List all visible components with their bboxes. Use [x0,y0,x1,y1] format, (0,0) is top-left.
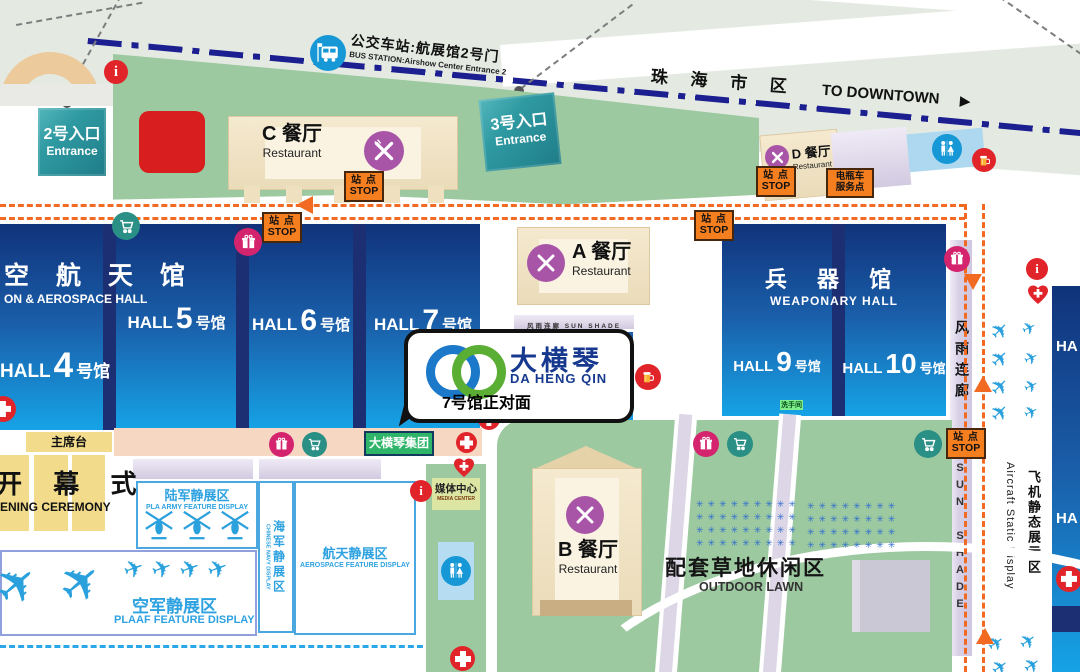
restaurant-c-sub: Restaurant [262,146,322,160]
aerospace-hall-title-zh: 空 航 天 馆 [4,256,195,292]
plane-icon: ✈ [986,345,1015,374]
navy-display-box: CHINESE NAVY DISPLAY 海军静展区 [258,481,294,633]
fengyu-corridor-label: 风雨连廊 [952,320,972,404]
shopping-icon [302,432,327,457]
info-icon: i [1026,258,1048,280]
bus-glyph [315,40,341,66]
pergola-strip [259,459,381,479]
hall-divider [103,224,116,430]
shuttle-stop-badge: 站 点STOP [946,428,986,459]
lawn-seating-grid: ✳✳✳✳✳✳✳✳ ✳✳✳✳✳✳✳✳ ✳✳✳✳✳✳✳✳ ✳✳✳✳✳✳✳✳ [807,500,899,552]
toilet-icon [441,556,471,586]
hall9-facility-badge: 洗手间 [780,400,803,410]
hall-9-label: HALL9号馆 [722,346,832,378]
weaponry-hall-complex: 兵 器 馆 WEAPONARY HALL HALL9号馆 HALL10号馆 [722,224,946,416]
restaurant-c-label: C 餐厅 Restaurant [262,124,322,160]
plane-icon: ✈ [49,550,113,615]
weaponry-hall-title-en: WEAPONARY HALL [722,294,946,308]
info-icon: i [410,480,432,502]
plaaf-display-box: ✈ ✈ ✈ ✈ ✈ ✈ 空军静展区 PLAAF FEATURE DISPLAY [0,550,257,636]
restaurant-d-label: D 餐厅 Restaurant [791,140,832,171]
bus-station-icon [310,35,346,71]
restaurant-b-roof [532,446,640,470]
gift-shop-icon [234,228,262,256]
dahengqin-note: 7号馆正对面 [442,389,531,413]
plane-icon: ✈ [986,399,1015,428]
plane-icon: ✈ [177,555,204,584]
ev-service-badge: 电瓶车服务点 [826,168,874,198]
refreshment-icon [972,148,996,172]
media-center-en: MEDIA CENTER [432,496,480,502]
lawn-label-zh: 配套草地休闲区 [665,552,826,582]
plane-icon: ✈ [149,555,176,584]
route-arrow-down [964,274,982,290]
weaponry-hall-title-zh: 兵 器 馆 [722,262,946,294]
entrance-2: 2号入口 Entrance [38,108,106,176]
building-leg [244,186,260,203]
lawn-label-en: OUTDOOR LAWN [699,580,803,594]
refreshment-icon [635,364,661,390]
media-center-box: 媒体中心 MEDIA CENTER [432,478,480,510]
shuttle-route-lower [0,217,965,220]
entrance-2-en: Entrance [38,144,106,158]
shuttle-stop-badge: 站 点STOP [756,166,796,197]
info-icon: i [104,60,128,84]
hall-10-label: HALL10号馆 [842,348,946,380]
hall-4-label: HALL4号馆 [0,346,103,386]
navy-display-zh: 海军静展区 [271,520,288,595]
army-display-zh: 陆军静展区 [138,485,256,504]
podium-label: 主席台 [51,435,87,449]
display-zone-dashed-line [0,645,432,648]
route-arrow-up [974,376,992,392]
shopping-icon [112,212,140,240]
right-hall-fragment: HA [1056,510,1078,527]
shuttle-stop-badge: 站 点STOP [694,210,734,241]
media-center-zh: 媒体中心 [432,481,480,496]
ceremony-label-en: PENING CEREMONY [0,500,111,514]
plane-icon: ✈ [121,555,148,584]
plaaf-display-en: PLAAF FEATURE DISPLAY [114,614,255,626]
aerospace-display-zh: 航天静展区 [296,543,414,562]
aerospace-display-en: AEROSPACE FEATURE DISPLAY [296,562,414,569]
dahengqin-group-badge: 大横琴集团 [364,431,434,456]
downtown-arrow-icon: ▶ [959,92,971,109]
gift-shop-icon [693,431,719,457]
lawn-seating-grid: ✳✳✳✳✳✳✳✳✳ ✳✳✳✳✳✳✳✳✳ ✳✳✳✳✳✳✳✳✳ ✳✳✳✳✳✳✳✳✳ [696,498,800,550]
toilet-icon [932,134,962,164]
plane-icon: ✈ [1019,318,1039,339]
helicopter-icon [142,509,176,541]
info-glyph: i [114,64,118,81]
dahengqin-callout: 大横琴 DA HENG QIN 7号馆正对面 [404,329,634,423]
plane-icon: ✈ [1021,348,1041,369]
restaurant-c-icon [364,131,404,171]
helicopter-icon [180,509,214,541]
entrance-2-zh: 2号入口 [38,120,106,144]
fork-knife-icon [371,138,397,164]
medical-icon [456,432,477,453]
building-leg [384,186,400,203]
army-display-box: 陆军静展区 PLA ARMY FEATURE DISPLAY [136,481,258,549]
restaurant-c-name: C 餐厅 [262,124,322,144]
aerospace-display-box: 航天静展区 AEROSPACE FEATURE DISPLAY [294,481,416,635]
medical-icon [450,646,475,671]
gift-shop-icon [944,246,970,272]
hall-6-label: HALL6号馆 [249,304,353,338]
restaurant-b-icon [566,496,604,534]
sunshade-strip-mid: 风雨连廊 SUN SHADE [514,315,634,329]
airshow-venue-map: 珠 海 市 区 TO DOWNTOWN ▶ 公交车站:航展馆2号门 BUS ST… [0,0,1080,672]
restaurant-a-sub: Restaurant [572,264,631,278]
route-arrow-up [976,628,994,644]
plane-icon: ✈ [0,552,49,617]
plane-icon: ✈ [1021,402,1041,423]
entrance-3: 3号入口 Entrance [478,92,561,172]
first-aid-heart-icon [452,456,476,480]
restaurant-b-base [540,600,632,616]
ceremony-label-zh: 开 幕 式 [0,464,148,501]
gray-walkway [0,84,118,106]
shuttle-route-upper [0,204,965,207]
medical-icon [1056,566,1080,592]
restaurant-a-icon [527,244,565,282]
helicopter-icon [218,509,252,541]
restaurant-b-name: B 餐厅 [548,540,628,560]
shuttle-stop-badge: 站 点STOP [344,171,384,202]
dahengqin-brand-en: DA HENG QIN [510,371,607,386]
shopping-icon [727,431,753,457]
gift-shop-icon [269,432,294,457]
hall-divider [353,224,366,430]
plane-icon: ✈ [986,317,1015,346]
shopping-icon [914,430,942,458]
lawn-building [852,560,930,632]
plane-icon: ✈ [205,555,232,584]
hall-5-label: HALL5号馆 [117,302,236,336]
restaurant-a-label: A 餐厅 Restaurant [572,242,631,278]
podium-bar: 主席台 [26,432,112,452]
restaurant-a-name: A 餐厅 [572,242,631,262]
restaurant-b-label: B 餐厅 Restaurant [548,540,628,576]
red-building [139,111,205,173]
building-leg [428,186,444,203]
hall-divider [832,224,845,416]
plane-icon: ✈ [1021,376,1041,397]
shuttle-stop-badge: 站 点STOP [262,212,302,243]
right-hall-fragment: HA [1056,338,1078,355]
restaurant-b-sub: Restaurant [548,562,628,576]
first-aid-heart-icon [1026,283,1050,307]
pergola-strip [133,459,253,479]
